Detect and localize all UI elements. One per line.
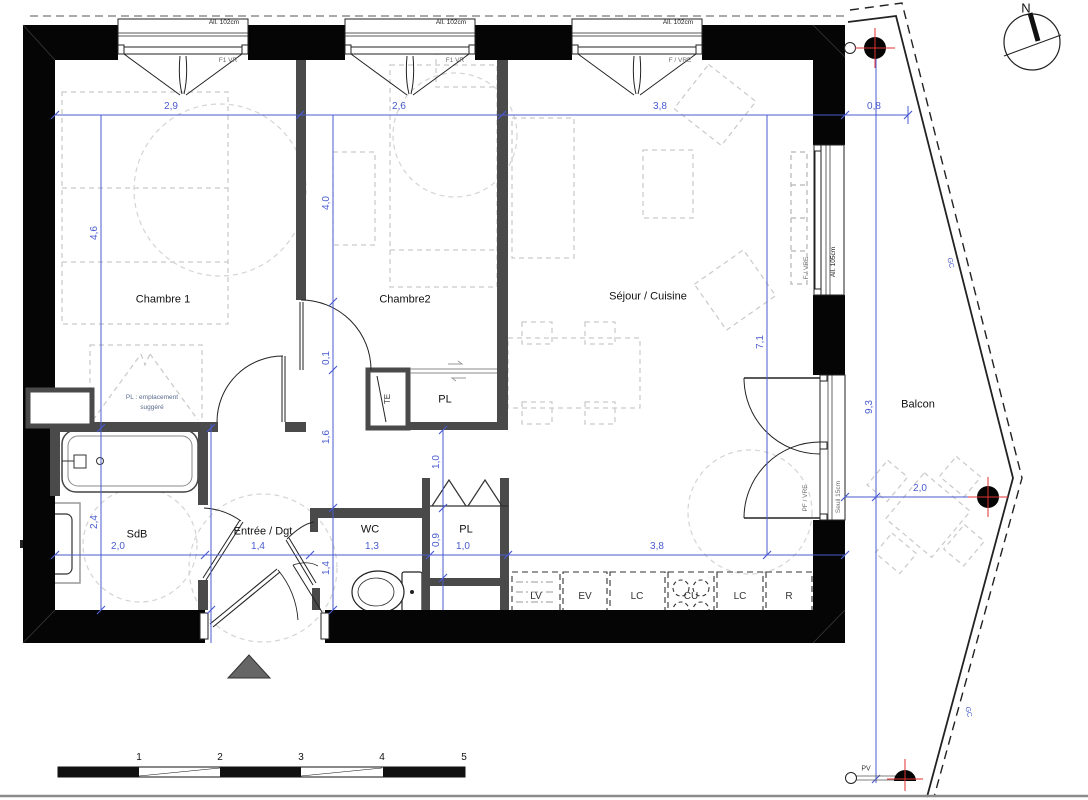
- door-pl-folding: [430, 480, 508, 506]
- dim-pl-width: 1,0: [456, 542, 470, 552]
- scale-tick-1: 1: [136, 753, 142, 763]
- window2-type-label: F1 VR: [446, 58, 464, 65]
- door-chambre1: [217, 356, 285, 422]
- right-window-sill-label: All. 105cm: [831, 247, 838, 277]
- room-label-entree: Entrée / Dgt: [234, 527, 293, 538]
- kitchen-unit-cu: CU: [684, 592, 698, 602]
- dim-balcony-offset: 0,8: [867, 102, 881, 112]
- toilet-icon: [352, 571, 422, 613]
- room-label-pl-entree: PL: [459, 525, 472, 536]
- floorplan-canvas: Chambre 1 Chambre2 Séjour / Cuisine SdB …: [0, 0, 1088, 800]
- scale-tick-5: 5: [461, 753, 467, 763]
- room-label-balcon: Balcon: [901, 400, 935, 411]
- entrance-arrow-icon: [228, 655, 270, 678]
- room-label-wc: WC: [361, 525, 379, 536]
- room-label-pl-hall: PL: [438, 395, 451, 406]
- dim-sejour-width: 3,8: [653, 102, 667, 112]
- scale-tick-4: 4: [379, 753, 385, 763]
- dim-chambre1-width: 2,9: [164, 102, 178, 112]
- dim-balcony-length: 9,3: [865, 400, 875, 414]
- room-label-sdb: SdB: [127, 530, 148, 541]
- window2-sill-label: All. 102cm: [436, 20, 466, 27]
- balcony-door-threshold-label: Seuil 15cm: [836, 481, 843, 513]
- dim-chambre2-width: 2,6: [392, 102, 406, 112]
- dim-sejour-depth: 7,1: [756, 335, 766, 349]
- room-label-sejour: Séjour / Cuisine: [609, 292, 687, 303]
- room-label-chambre2: Chambre2: [379, 295, 430, 306]
- dim-kitchen-width: 3,8: [650, 542, 664, 552]
- furniture-layer: [62, 54, 1014, 642]
- balcony-door: [744, 375, 845, 520]
- scale-tick-3: 3: [298, 753, 304, 763]
- door-sdb: [203, 508, 243, 580]
- kitchen-unit-r: R: [785, 592, 792, 602]
- balcony-door-type-label: PF / VRE: [803, 484, 810, 511]
- dim-balcony-width: 2,0: [913, 484, 927, 494]
- kitchen-unit-ev: EV: [578, 592, 591, 602]
- right-window-type-label: F / VRE: [804, 257, 811, 280]
- door-chambre2: [300, 300, 371, 370]
- window1-type-label: F1 VR: [219, 58, 237, 65]
- scale-bar: [58, 767, 465, 777]
- pl-note-line1: PL : emplacement: [126, 395, 178, 402]
- dim-door-offset: 0,1: [322, 351, 332, 365]
- compass-icon: [1004, 13, 1061, 70]
- window3-type-label: F / VRE: [669, 58, 692, 65]
- dim-chambre2-depth: 4,0: [322, 196, 332, 210]
- bathtub-icon: [62, 430, 198, 492]
- dim-hall-depth: 1,6: [322, 430, 332, 444]
- dim-wc-width: 1,3: [365, 542, 379, 552]
- exterior-walls: [23, 25, 845, 643]
- kitchen-unit-lv: LV: [530, 592, 542, 602]
- room-label-te: TE: [384, 394, 392, 404]
- room-label-chambre1: Chambre 1: [136, 295, 190, 306]
- fixtures-layer: [20, 430, 422, 613]
- kitchen-unit-lc1: LC: [631, 592, 644, 602]
- kitchen-unit-lc2: LC: [734, 592, 747, 602]
- window3-sill-label: All. 102cm: [663, 20, 693, 27]
- pv-label: PV: [861, 766, 870, 773]
- scale-tick-2: 2: [217, 753, 223, 763]
- dim-sdb-width: 2,0: [111, 542, 125, 552]
- north-label: N: [1021, 2, 1030, 15]
- dim-chambre1-depth: 4,6: [90, 226, 100, 240]
- dim-sdb-depth: 2,4: [90, 515, 100, 529]
- dim-entree-width: 1,4: [251, 542, 265, 552]
- dim-pl-front: 1,0: [432, 455, 442, 469]
- pl-note-line2: suggéré: [140, 405, 164, 412]
- dim-pl-depth: 0,9: [432, 533, 442, 547]
- dim-hall-lower: 1,4: [322, 561, 332, 575]
- window1-sill-label: All. 102cm: [209, 20, 239, 27]
